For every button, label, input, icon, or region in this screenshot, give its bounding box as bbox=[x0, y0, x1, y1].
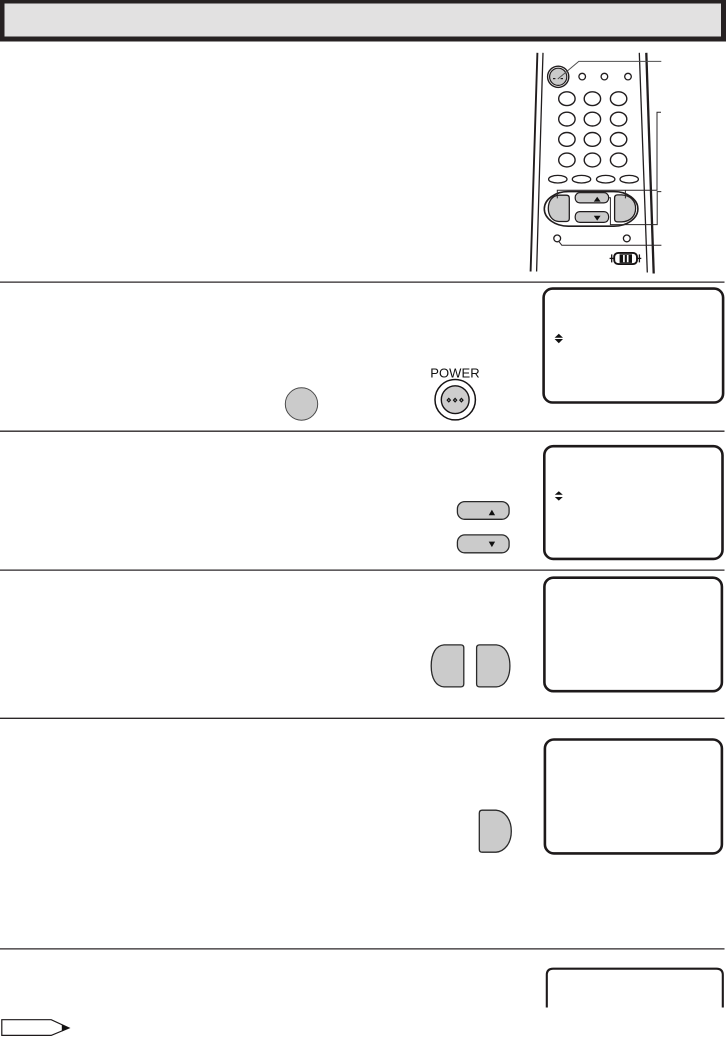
svg-text:POWER: POWER bbox=[430, 365, 480, 380]
